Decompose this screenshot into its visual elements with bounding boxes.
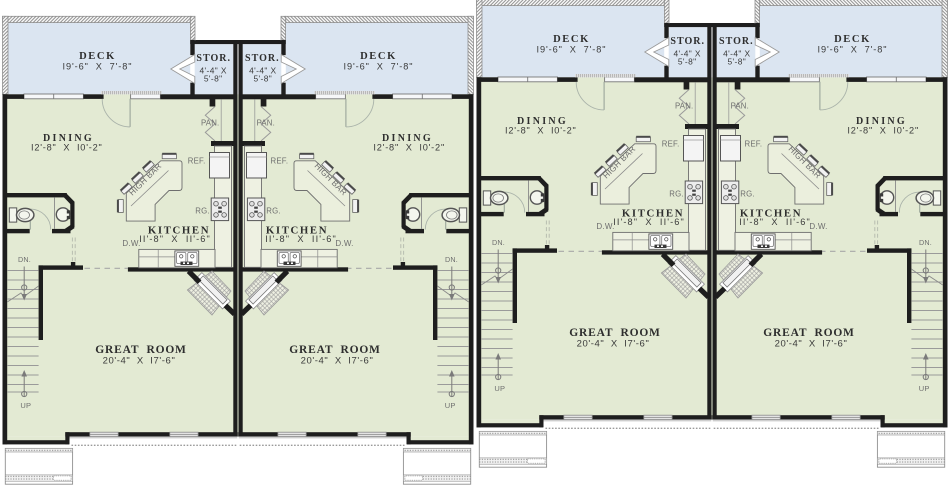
svg-text:20'-4" X I7'-6": 20'-4" X I7'-6" bbox=[577, 339, 650, 350]
svg-text:DECK: DECK bbox=[360, 51, 397, 62]
svg-text:D.W.: D.W. bbox=[596, 222, 614, 231]
svg-text:DN.: DN. bbox=[18, 255, 31, 264]
svg-text:20'-4" X I7'-6": 20'-4" X I7'-6" bbox=[775, 339, 848, 350]
svg-text:I2'-8" X I0'-2": I2'-8" X I0'-2" bbox=[31, 142, 103, 152]
svg-text:UP: UP bbox=[20, 401, 31, 410]
svg-text:I9'-6" X 7'-8": I9'-6" X 7'-8" bbox=[344, 62, 414, 72]
svg-text:D.W.: D.W. bbox=[335, 239, 353, 248]
svg-text:DECK: DECK bbox=[553, 34, 590, 45]
svg-text:UP: UP bbox=[445, 401, 456, 410]
svg-text:II'-8" X II'-6": II'-8" X II'-6" bbox=[739, 217, 811, 227]
svg-text:REF.: REF. bbox=[745, 140, 763, 149]
svg-text:STOR.: STOR. bbox=[670, 36, 705, 47]
svg-text:PAN.: PAN. bbox=[731, 101, 749, 110]
svg-text:DECK: DECK bbox=[79, 51, 116, 62]
svg-text:REF.: REF. bbox=[662, 140, 680, 149]
svg-text:PAN.: PAN. bbox=[201, 118, 219, 127]
svg-text:DN.: DN. bbox=[919, 238, 932, 247]
svg-text:RG.: RG. bbox=[195, 207, 209, 216]
svg-text:II'-8" X II'-6": II'-8" X II'-6" bbox=[139, 234, 211, 244]
svg-text:DN.: DN. bbox=[492, 238, 505, 247]
svg-text:20'-4" X I7'-6": 20'-4" X I7'-6" bbox=[301, 356, 374, 367]
svg-text:RG.: RG. bbox=[266, 207, 280, 216]
svg-text:REF.: REF. bbox=[188, 157, 206, 166]
svg-text:DN.: DN. bbox=[445, 255, 458, 264]
svg-text:5'-8": 5'-8" bbox=[678, 57, 697, 67]
svg-text:II'-8" X II'-6": II'-8" X II'-6" bbox=[265, 234, 337, 244]
svg-text:UP: UP bbox=[494, 384, 505, 393]
svg-text:I2'-8" X I0'-2": I2'-8" X I0'-2" bbox=[847, 125, 919, 135]
svg-text:I9'-6" X 7'-8": I9'-6" X 7'-8" bbox=[63, 62, 133, 72]
svg-text:DECK: DECK bbox=[834, 34, 871, 45]
svg-text:20'-4" X I7'-6": 20'-4" X I7'-6" bbox=[103, 356, 176, 367]
svg-text:GREAT ROOM: GREAT ROOM bbox=[95, 344, 186, 356]
svg-text:D.W.: D.W. bbox=[809, 222, 827, 231]
svg-text:5'-8": 5'-8" bbox=[253, 74, 272, 84]
svg-text:I2'-8" X I0'-2": I2'-8" X I0'-2" bbox=[505, 125, 577, 135]
svg-text:STOR.: STOR. bbox=[719, 36, 754, 47]
svg-text:STOR.: STOR. bbox=[196, 53, 231, 64]
svg-text:GREAT ROOM: GREAT ROOM bbox=[763, 327, 854, 339]
svg-text:RG.: RG. bbox=[740, 190, 754, 199]
svg-text:GREAT ROOM: GREAT ROOM bbox=[289, 344, 380, 356]
svg-text:5'-8": 5'-8" bbox=[204, 74, 223, 84]
svg-text:UP: UP bbox=[919, 384, 930, 393]
svg-text:RG.: RG. bbox=[669, 190, 683, 199]
svg-text:STOR.: STOR. bbox=[245, 53, 280, 64]
svg-text:REF.: REF. bbox=[271, 157, 289, 166]
svg-text:II'-8" X II'-6": II'-8" X II'-6" bbox=[613, 217, 685, 227]
svg-text:I9'-6" X 7'-8": I9'-6" X 7'-8" bbox=[818, 45, 888, 55]
svg-text:5'-8": 5'-8" bbox=[727, 57, 746, 67]
svg-text:GREAT ROOM: GREAT ROOM bbox=[569, 327, 660, 339]
svg-text:I2'-8" X I0'-2": I2'-8" X I0'-2" bbox=[373, 142, 445, 152]
svg-text:I9'-6" X 7'-8": I9'-6" X 7'-8" bbox=[537, 45, 607, 55]
svg-text:PAN.: PAN. bbox=[257, 118, 275, 127]
svg-text:PAN.: PAN. bbox=[675, 101, 693, 110]
svg-text:D.W.: D.W. bbox=[122, 239, 140, 248]
